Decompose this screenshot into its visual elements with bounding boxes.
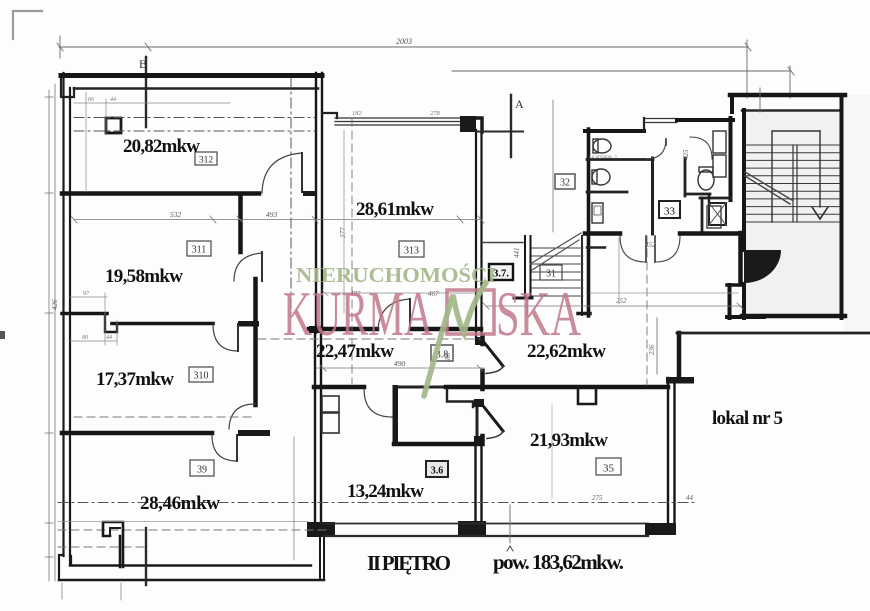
svg-text:2003: 2003 — [396, 37, 412, 46]
svg-text:35: 35 — [603, 463, 615, 475]
svg-text:33: 33 — [664, 206, 676, 218]
svg-text:17,37mkw: 17,37mkw — [96, 369, 174, 390]
svg-text:44: 44 — [106, 334, 112, 341]
svg-text:377: 377 — [339, 227, 347, 239]
svg-text:( z prysznic. ): ( z prysznic. ) — [589, 155, 617, 160]
svg-text:3.6: 3.6 — [431, 466, 444, 477]
svg-text:44: 44 — [686, 494, 694, 502]
svg-text:182: 182 — [352, 110, 363, 117]
svg-text:13,24mkw: 13,24mkw — [347, 481, 424, 502]
svg-text:236: 236 — [648, 344, 656, 355]
svg-text:lokal nr 5: lokal nr 5 — [712, 408, 783, 429]
svg-text:97: 97 — [83, 291, 90, 297]
svg-text:426: 426 — [51, 299, 59, 310]
svg-text:425: 425 — [682, 149, 690, 160]
svg-text:441: 441 — [513, 248, 521, 259]
svg-text:20,82mkw: 20,82mkw — [123, 136, 200, 157]
svg-text:32: 32 — [560, 178, 570, 189]
svg-text:II PIĘTRO: II PIĘTRO — [367, 551, 451, 575]
svg-text:532: 532 — [170, 210, 182, 219]
svg-text:493: 493 — [266, 210, 278, 219]
svg-text:28,61mkw: 28,61mkw — [356, 199, 434, 220]
svg-text:B: B — [139, 57, 147, 71]
svg-text:80: 80 — [82, 335, 88, 341]
svg-text:19,58mkw: 19,58mkw — [105, 266, 183, 287]
svg-text:312: 312 — [199, 156, 214, 166]
svg-text:490: 490 — [394, 359, 406, 368]
svg-text:278: 278 — [430, 110, 441, 117]
svg-text:275: 275 — [592, 494, 603, 502]
svg-text:252: 252 — [616, 297, 627, 305]
svg-text:310: 310 — [194, 371, 209, 382]
svg-text:313: 313 — [404, 246, 419, 257]
svg-text:44: 44 — [110, 96, 116, 103]
svg-text:A: A — [515, 97, 524, 111]
svg-text:SKA: SKA — [496, 278, 581, 349]
svg-text:311: 311 — [192, 245, 207, 256]
svg-text:39: 39 — [197, 465, 207, 476]
svg-text:KURMA: KURMA — [283, 278, 433, 349]
svg-text:21,93mkw: 21,93mkw — [530, 430, 608, 451]
svg-text:pow. 183,62mkw.: pow. 183,62mkw. — [493, 550, 624, 574]
svg-text:28,46mkw: 28,46mkw — [140, 493, 220, 514]
svg-text:66: 66 — [88, 97, 94, 103]
